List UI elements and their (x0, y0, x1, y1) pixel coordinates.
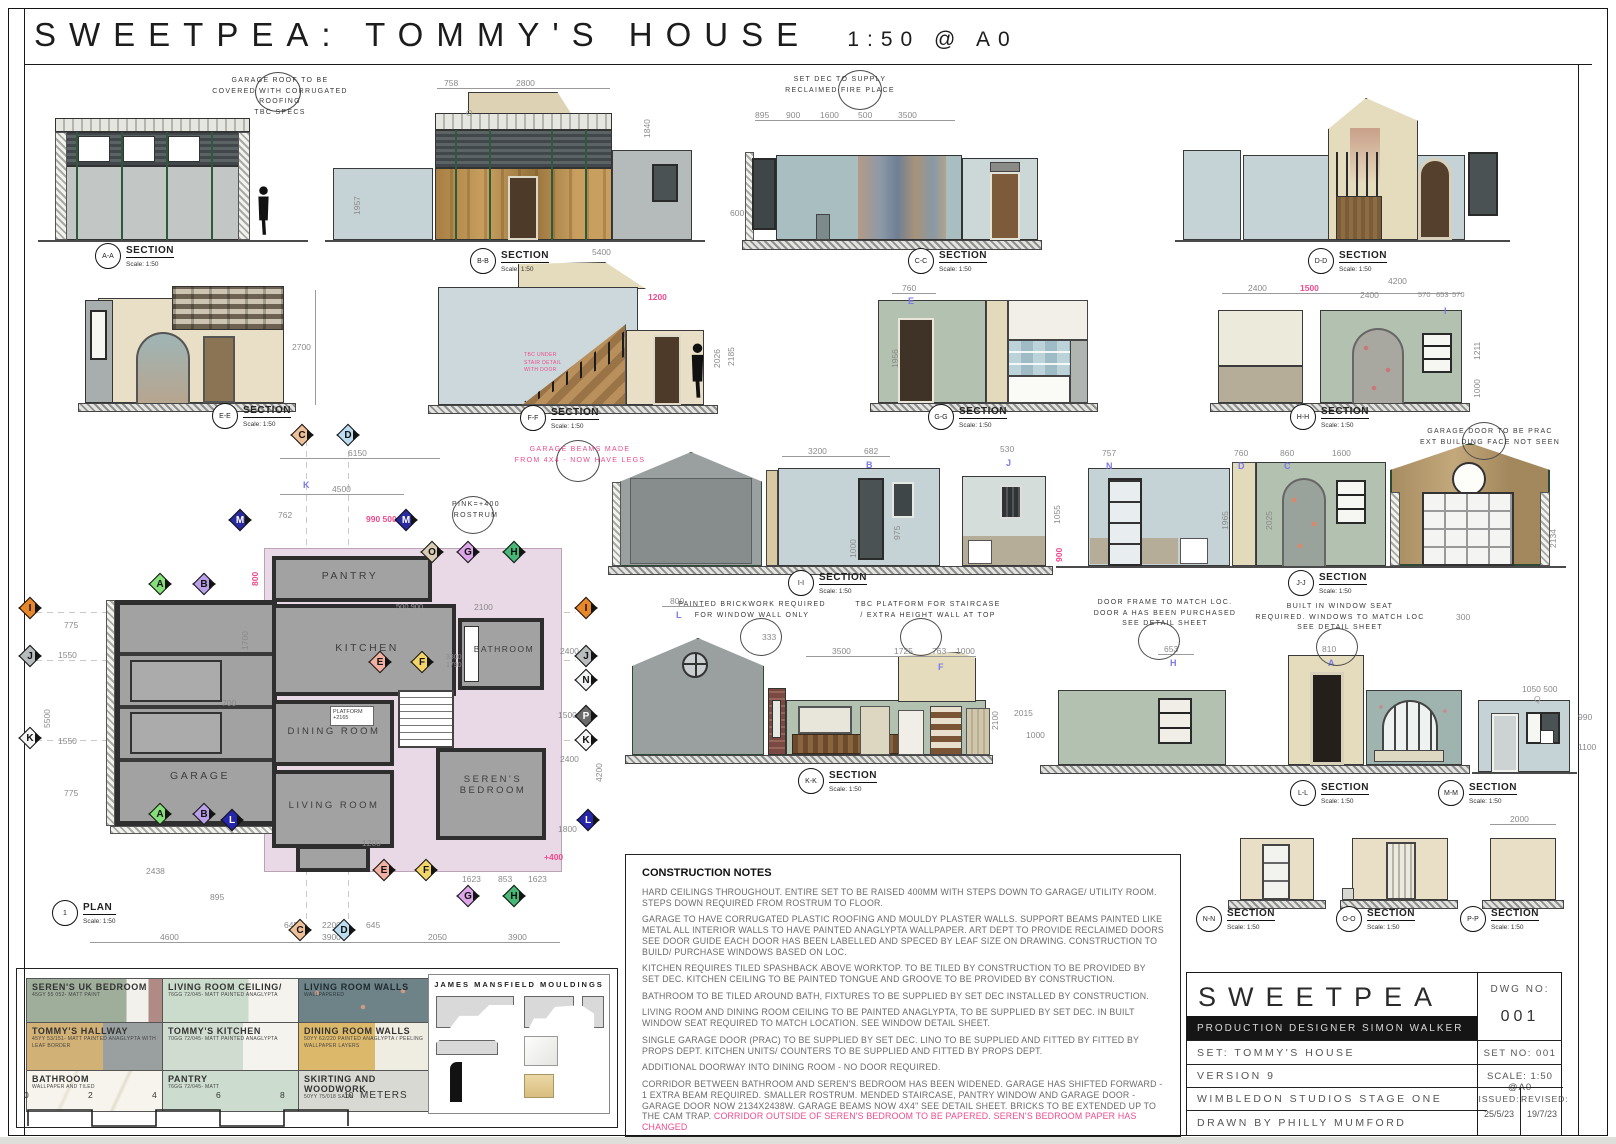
letter-f: F (938, 662, 944, 672)
dim: 775 (64, 620, 78, 630)
section-word: SECTION (501, 250, 549, 263)
jj-round-window (1452, 462, 1486, 496)
plan-marker-f: F (416, 860, 436, 880)
dim: 1800 (558, 824, 577, 834)
room-label-seren: SEREN'S BEDROOM (448, 774, 538, 796)
dim: 300 (1456, 612, 1470, 622)
section-id: M-M (1438, 780, 1464, 806)
section-label-jj: J-JSECTIONScale: 1:50 (1288, 570, 1367, 596)
room-label-bathroom: BATHROOM (462, 644, 546, 654)
section-word: SECTION (1367, 908, 1415, 921)
plan-stair (398, 690, 454, 748)
cc-door (990, 172, 1020, 240)
dim: 895 (210, 892, 224, 902)
oo-step (1342, 888, 1354, 900)
callout-platform: TBC PLATFORM FOR STAIRCASE / EXTRA HEIGH… (838, 600, 1018, 621)
ii-small-window (892, 482, 914, 518)
section-scale: Scale: 1:50 (1319, 588, 1367, 595)
callout-brickwork: PAINTED BRICKWORK REQUIRED FOR WINDOW WA… (662, 600, 842, 621)
dim: 2134 (1548, 529, 1558, 548)
section-id: H-H (1290, 404, 1316, 430)
dd-arch-door (1418, 158, 1452, 240)
cc-plinth (742, 240, 1042, 250)
dim: 1623 (528, 874, 547, 884)
scale-tick: 0 (24, 1090, 29, 1100)
ll-left-wall (1058, 690, 1226, 765)
dim: 2100 (474, 602, 493, 612)
section-word: SECTION (1319, 572, 1367, 585)
plan-marker-j: J (576, 646, 596, 666)
letter-e: E (908, 296, 914, 306)
dim: 1600 (820, 110, 839, 120)
dim-line (892, 293, 936, 294)
dim: 645 (366, 920, 380, 930)
section-scale: Scale: 1:50 (501, 266, 549, 273)
gg-tub (1008, 376, 1070, 403)
revised-label: REVISED: (1521, 1094, 1563, 1104)
ll-door-a (1310, 672, 1344, 765)
section-label-aa: A-ASECTIONScale: 1:50 (95, 243, 174, 269)
section-id: B-B (470, 248, 496, 274)
letter-h: H (1170, 658, 1177, 668)
letter-o: O (466, 108, 473, 118)
person-silhouette (688, 337, 707, 405)
aa-beam (76, 132, 78, 240)
plan-scale: Scale: 1:50 (83, 918, 116, 925)
aa-pillar (238, 132, 250, 240)
ee-window (90, 310, 107, 360)
dim: 760 (902, 283, 916, 293)
bb-beam (489, 130, 491, 240)
dim: +400 (544, 852, 563, 862)
plan-marker-g: G (458, 542, 478, 562)
issued-date: 25/5/23 (1478, 1109, 1520, 1119)
ground-line (1056, 566, 1566, 568)
letter-b: B (866, 460, 873, 470)
moulding-architrave-black (450, 1062, 462, 1102)
plan-marker-i: I (576, 598, 596, 618)
dim: 5400 (592, 247, 611, 257)
letter-k: K (303, 480, 310, 490)
jj-window (1336, 480, 1366, 524)
scale-tick: 10 (344, 1090, 353, 1100)
ground-line (1472, 772, 1577, 774)
page-title: SWEETPEA: TOMMY'S HOUSE 1:50 @ A0 (34, 16, 1018, 54)
aa-beam (121, 132, 123, 240)
section-word: SECTION (1321, 406, 1369, 419)
dim: 1000 (956, 646, 975, 656)
dim: 3500 (832, 646, 851, 656)
plan-marker-j: J (20, 646, 40, 666)
dim: 1956 (890, 349, 900, 368)
plan-marker-f: F (412, 652, 432, 672)
cc-mural (858, 156, 946, 239)
dim: 2400 (1248, 283, 1267, 293)
plan-marker-h: H (504, 886, 524, 906)
plan-garage-beam (120, 758, 272, 762)
dd-stair (1336, 196, 1382, 240)
room-label-pantry: PANTRY (300, 570, 400, 582)
plan-marker-l: L (222, 810, 242, 830)
mouldings-title: JAMES MANSFIELD MOULDINGS (428, 980, 610, 989)
dim: 2100 (990, 711, 1000, 730)
section-label-ee: E-ESECTIONScale: 1:50 (212, 403, 291, 429)
dim: 1550 (58, 736, 77, 746)
bb-beam (585, 130, 587, 240)
dim: 760 (1234, 448, 1248, 458)
ll-arch-window-seat (1382, 700, 1438, 750)
dim: 895 (755, 110, 769, 120)
nn-door (1262, 844, 1290, 900)
section-id: N-N (1196, 906, 1222, 932)
dim-line (280, 494, 404, 495)
section-label-ii: I-ISECTIONScale: 1:50 (788, 570, 867, 596)
note-last-pink: CORRIDOR OUTSIDE OF SEREN'S BEDROOM TO B… (642, 1111, 1137, 1132)
revised-date: 19/7/23 (1521, 1109, 1563, 1119)
dim: 600 (730, 208, 744, 218)
dim: 853 (498, 874, 512, 884)
plan-marker-e: E (374, 860, 394, 880)
letter-c: C (1284, 461, 1291, 471)
ll-plinth (1040, 765, 1470, 774)
section-word: SECTION (819, 572, 867, 585)
dim: 2800 (516, 78, 535, 88)
section-scale: Scale: 1:50 (1227, 924, 1275, 931)
kk-cupboard (898, 710, 924, 755)
swatch-living-ceiling: LIVING ROOM CEILING/76GG 72/045- MATT PA… (162, 978, 302, 1024)
section-id: F-F (520, 405, 546, 431)
plan-marker-d: D (338, 425, 358, 445)
dim: 2050 (428, 932, 447, 942)
dim: 4200 (594, 763, 604, 782)
note-paragraph: CORRIDOR BETWEEN BATHROOM AND SEREN'S BE… (642, 1079, 1164, 1133)
section-label-kk: K-KSECTIONScale: 1:50 (798, 768, 877, 794)
note-paragraph: KITCHEN REQUIRES TILED SPASHBACK ABOVE W… (642, 963, 1164, 984)
issued-label: ISSUED: (1478, 1094, 1520, 1104)
note-paragraph: HARD CEILINGS THROUGHOUT. ENTIRE SET TO … (642, 887, 1164, 908)
section-id: O-O (1336, 906, 1362, 932)
callout-garage-roof: GARAGE ROOF TO BE COVERED WITH CORRUGATE… (190, 76, 370, 118)
dim-line (1490, 824, 1556, 825)
swatch-kitchen: TOMMY'S KITCHEN70GG 72/045- MATT PAINTED… (162, 1022, 302, 1072)
bb-beam (551, 130, 553, 240)
section-word: SECTION (959, 406, 1007, 419)
ii-sliver (766, 470, 778, 566)
dwg-number: 001 (1478, 1008, 1562, 1026)
dim: 3200 (808, 446, 827, 456)
gg-marble-top (1008, 300, 1088, 340)
dim-line (437, 88, 610, 89)
dim: 2026 (712, 349, 722, 368)
scale-tick: 2 (88, 1090, 93, 1100)
moulding-wood-block (524, 1074, 554, 1098)
section-id: I-I (788, 570, 814, 596)
bb-left-wing (333, 168, 433, 240)
title-scale: 1:50 @ A0 (847, 28, 1017, 51)
dim: 990 (1578, 712, 1592, 722)
section-word: SECTION (829, 770, 877, 783)
revised-cell: REVISED:19/7/23 (1520, 1087, 1563, 1136)
section-scale: Scale: 1:50 (1367, 924, 1415, 931)
section-word: SECTION (1339, 250, 1387, 263)
plan-platform-note: PLATFORM +2165 (330, 706, 374, 726)
aa-window (78, 136, 110, 162)
dim: 3500 (898, 110, 917, 120)
ee-plaid-roof (172, 286, 284, 330)
dim: 4500 (332, 484, 351, 494)
right-inner-border (1578, 64, 1579, 1136)
section-label-cc: C-CSECTIONScale: 1:50 (908, 248, 987, 274)
dim: 2000 (1510, 814, 1529, 824)
room-label-living: LIVING ROOM (276, 800, 392, 811)
aa-window (168, 136, 200, 162)
dim: 762 (278, 510, 292, 520)
section-scale: Scale: 1:50 (243, 421, 291, 428)
dim: 700 (222, 698, 236, 708)
ff-door (653, 335, 681, 405)
section-id: G-G (928, 404, 954, 430)
plan-marker-d: D (334, 920, 354, 940)
titleblock-name: SWEETPEA (1198, 982, 1444, 1013)
ground-line (38, 240, 308, 242)
plan-marker-p: P (576, 706, 596, 726)
moulding-skirting-profile (436, 1040, 498, 1055)
section-word: SECTION (939, 250, 987, 263)
dim: 2400 (560, 754, 579, 764)
section-label-dd: D-DSECTIONScale: 1:50 (1308, 248, 1387, 274)
dim-line (280, 458, 440, 459)
bb-front-door (508, 176, 538, 240)
section-label-ll: L-LSECTIONScale: 1:50 (1290, 780, 1369, 806)
swatch-hallway: TOMMY'S HALLWAY45YY 53/151- MATT PAINTED… (26, 1022, 166, 1072)
dim: 2438 (146, 866, 165, 876)
dim: 5500 (42, 709, 52, 728)
section-label-hh: H-HSECTIONScale: 1:50 (1290, 404, 1369, 430)
plan-garage-bench (130, 712, 222, 754)
ll-bench (1374, 750, 1444, 762)
dim: 1000 (1026, 730, 1045, 740)
kk-window (798, 706, 852, 734)
dim: 1550 (58, 650, 77, 660)
dim: 1055 (1052, 505, 1062, 524)
section-id: D-D (1308, 248, 1334, 274)
scale-tick: 6 (216, 1090, 221, 1100)
section-label-pp: P-PSECTIONScale: 1:50 (1460, 906, 1539, 932)
room-label-kitchen: KITCHEN (312, 642, 422, 654)
ii-pillar (612, 482, 621, 566)
room-label-dining: DINING ROOM (276, 726, 392, 737)
oo-door (1386, 842, 1416, 900)
plan-number: 1 (52, 900, 78, 926)
callout-stair-tbc: TBC UNDER STAIR DETAIL WITH DOOR (524, 352, 566, 375)
letter-j: J (1006, 458, 1011, 468)
designer-text: PRODUCTION DESIGNER SIMON WALKER (1197, 1023, 1463, 1034)
dim: 1000 (1472, 379, 1482, 398)
hh-window (1422, 333, 1452, 373)
dim: 757 (1102, 448, 1116, 458)
plan-marker-i: I (20, 598, 40, 618)
left-inner-border (24, 8, 25, 1136)
dim: 2025 (1264, 511, 1274, 530)
room-label-garage: GARAGE (150, 770, 250, 782)
section-id: J-J (1288, 570, 1314, 596)
dim: 653 (1436, 290, 1449, 299)
kk-pillar-window (772, 700, 781, 738)
plan-marker-b: B (194, 574, 214, 594)
dim: 570 (1452, 290, 1465, 299)
callout-garage-door: GARAGE DOOR TO BE PRAC EXT BUILDING FACE… (1400, 427, 1580, 448)
callout-circle (1316, 628, 1358, 666)
dim-line (782, 456, 890, 457)
bb-window (652, 164, 678, 202)
ii-garage-inner (630, 478, 752, 564)
callout-rostrum: PINK=+400 ROSTRUM (436, 500, 516, 521)
dim-line (315, 290, 316, 405)
aa-beam (166, 132, 168, 240)
hh-left-wall-bottom (1218, 366, 1303, 403)
kk-tower (898, 652, 976, 702)
kk-roundel (682, 652, 708, 678)
section-id: C-C (908, 248, 934, 274)
cc-transom (990, 162, 1020, 172)
dim: 6150 (348, 448, 367, 458)
moulding-panel-sample (524, 1036, 558, 1066)
jj-cupboard (1180, 538, 1208, 564)
platform-text: PLATFORM +2165 (333, 709, 363, 721)
dim: 3300 (446, 654, 462, 661)
dim: 1050 500 (1522, 684, 1557, 694)
jj-glazed-door (1108, 478, 1142, 566)
dim: 1500 (1300, 283, 1319, 293)
section-label-oo: O-OSECTIONScale: 1:50 (1336, 906, 1415, 932)
ii-mini-cupboard (968, 540, 992, 564)
section-word: SECTION (126, 245, 174, 258)
dim-line (806, 656, 976, 657)
plan-marker-k: K (20, 728, 40, 748)
plan-marker-n: N (576, 670, 596, 690)
hh-arch-mural (1352, 328, 1404, 403)
plan-marker-m: M (396, 510, 416, 530)
ii-grille-window (1000, 485, 1022, 519)
section-id: E-E (212, 403, 238, 429)
dim: 900 (1054, 548, 1064, 562)
section-scale: Scale: 1:50 (819, 588, 867, 595)
dim: 2185 (726, 347, 736, 366)
section-scale: Scale: 1:50 (1339, 266, 1387, 273)
callout-circle (900, 618, 942, 656)
dim: 800 (250, 572, 260, 586)
scale-unit: METERS (360, 1090, 408, 1101)
plan-label: 1PLANScale: 1:50 (52, 900, 116, 926)
ee-arch-mural (136, 332, 190, 403)
section-word: SECTION (1469, 782, 1517, 795)
plan-marker-m: M (230, 510, 250, 530)
section-scale: Scale: 1:50 (829, 786, 877, 793)
dim: 2700 (292, 342, 311, 352)
section-word: SECTION (1491, 908, 1539, 921)
dim: 975 (892, 526, 902, 540)
bb-beam (455, 130, 457, 240)
letter-q: Q (1534, 694, 1541, 704)
plan-marker-o: O (422, 542, 442, 562)
construction-notes: CONSTRUCTION NOTES HARD CEILINGS THROUGH… (625, 854, 1181, 1137)
dim: 775 (64, 788, 78, 798)
plan-marker-a: A (150, 574, 170, 594)
plan-marker-g: G (458, 886, 478, 906)
letter-d: D (1238, 461, 1245, 471)
cc-fireplace (816, 214, 830, 240)
section-label-mm: M-MSECTIONScale: 1:50 (1438, 780, 1517, 806)
ii-window (858, 478, 884, 560)
issued-cell: ISSUED:25/5/23 (1478, 1087, 1520, 1136)
note-paragraph: LIVING ROOM AND DINING ROOM CEILING TO B… (642, 1007, 1164, 1028)
note-paragraph: SINGLE GARAGE DOOR (PRAC) TO BE SUPPLIED… (642, 1035, 1164, 1056)
section-id: A-A (95, 243, 121, 269)
note-paragraph: ADDITIONAL DOORWAY INTO DINING ROOM - NO… (642, 1062, 1164, 1073)
plan-marker-e: E (370, 652, 390, 672)
title-divider (24, 64, 1592, 65)
scale-bar (26, 1100, 356, 1128)
dd-stair-balusters (1336, 152, 1382, 196)
gg-sliver (986, 300, 1008, 403)
jj-sliver (1232, 462, 1256, 566)
dim: 500 900 (396, 602, 423, 611)
jj-garage-door (1422, 492, 1514, 566)
plan-marker-l: L (578, 810, 598, 830)
dim: 2400 (1360, 290, 1379, 300)
section-scale: Scale: 1:50 (1491, 924, 1539, 931)
kk-plinth (625, 755, 993, 764)
dim: 900 (786, 110, 800, 120)
dd-left-wing (1183, 150, 1241, 240)
letter-i: I (1444, 306, 1447, 316)
section-label-ff: F-FSECTIONScale: 1:50 (520, 405, 599, 431)
section-word: SECTION (1227, 908, 1275, 921)
plan-garage-beam (120, 652, 272, 656)
ll-window (1158, 698, 1192, 744)
plan-garage-beam (120, 705, 272, 709)
section-label-bb: B-BSECTIONScale: 1:50 (470, 248, 549, 274)
callout-fireplace: SET DEC TO SUPPLY RECLAIMED FIRE PLACE (770, 75, 910, 96)
swatch-serens-bedroom: SEREN'S UK BEDROOM45GY 55 052- MATT PAIN… (26, 978, 166, 1024)
dim: 2015 (1014, 708, 1033, 718)
plan-marker-c: C (290, 920, 310, 940)
gg-right-sliver (1070, 340, 1088, 403)
ground-line (1175, 240, 1510, 242)
notes-paragraphs: HARD CEILINGS THROUGHOUT. ENTIRE SET TO … (642, 887, 1164, 1073)
aa-pillar (55, 132, 67, 240)
ee-door (203, 336, 235, 403)
dim: 1623 (462, 874, 481, 884)
dim: 3900 (508, 932, 527, 942)
dim: 1840 (642, 119, 652, 138)
section-word: SECTION (551, 407, 599, 420)
plan-bathtub (464, 626, 479, 682)
plan-marker-a: A (150, 804, 170, 824)
plan-word: PLAN (83, 902, 116, 915)
notes-title: CONSTRUCTION NOTES (642, 867, 1164, 879)
gg-door (898, 318, 934, 403)
titleblock-drawn: DRAWN BY PHILLY MUMFORD (1187, 1110, 1487, 1142)
swatch-living-walls: LIVING ROOM WALLSWALLPAPERED (298, 978, 438, 1024)
plan-marker-k: K (576, 730, 596, 750)
scale-tick: 4 (152, 1090, 157, 1100)
bb-roof-box (468, 92, 572, 115)
pp-wall (1490, 838, 1556, 900)
dim-line (755, 120, 955, 121)
hh-left-wall-top (1218, 310, 1303, 366)
section-label-gg: G-GSECTIONScale: 1:50 (928, 404, 1007, 430)
